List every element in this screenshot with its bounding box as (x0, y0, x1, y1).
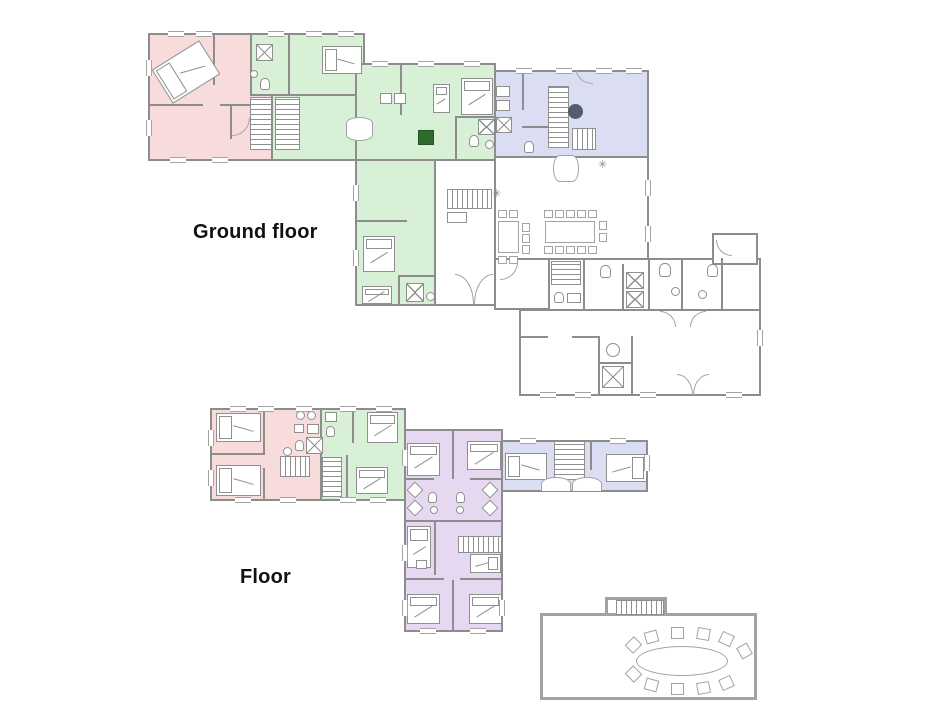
stove-icon (418, 130, 434, 145)
wall (622, 264, 624, 311)
wall (470, 478, 503, 480)
shower-icon (306, 437, 323, 454)
window-marker (170, 157, 186, 163)
window-marker (353, 185, 359, 201)
bed-icon (461, 78, 493, 115)
toilet-icon (469, 135, 479, 147)
double-door-icon (346, 129, 373, 141)
window-marker (306, 31, 322, 37)
kitchen-unit-icon (380, 93, 392, 104)
chair-icon (577, 246, 586, 254)
window-marker (556, 68, 572, 74)
chair-icon (588, 246, 597, 254)
window-marker (296, 406, 312, 412)
stairs-icon (250, 97, 272, 150)
stairs-icon (275, 97, 300, 150)
fixture-icon (307, 424, 319, 434)
toilet-icon (659, 263, 671, 277)
window-marker (645, 226, 651, 242)
window-marker (402, 545, 408, 561)
window-marker (338, 31, 354, 37)
toilet-icon (600, 265, 611, 278)
wall (148, 104, 203, 106)
window-marker (212, 157, 228, 163)
toilet-icon (326, 426, 335, 437)
first-floor-label: Floor (240, 566, 291, 589)
wall (434, 520, 436, 575)
wall (648, 258, 650, 311)
chair-icon (498, 210, 507, 218)
wall (583, 258, 585, 311)
window-marker (168, 31, 184, 37)
sink-icon (307, 411, 316, 420)
wall (522, 126, 548, 128)
fixture-icon (416, 560, 427, 569)
wall (631, 336, 633, 396)
column-marker-icon (568, 104, 583, 119)
toilet-icon (554, 292, 564, 303)
wall (721, 258, 723, 311)
toilet-icon (707, 264, 718, 277)
wall (355, 220, 407, 222)
window-marker (402, 450, 408, 466)
wall (398, 275, 436, 277)
bed-icon (467, 441, 501, 470)
window-marker (645, 180, 651, 196)
chair-icon (544, 210, 553, 218)
window-marker (516, 68, 532, 74)
window-marker (208, 430, 214, 446)
oval-table (636, 646, 728, 676)
chair-icon (696, 627, 711, 641)
window-marker (280, 497, 296, 503)
wall (460, 578, 503, 580)
toilet-icon (524, 141, 534, 153)
chair-icon (522, 234, 530, 243)
stairs-icon (572, 128, 596, 150)
window-marker (146, 120, 152, 136)
sink-icon (606, 343, 620, 357)
wall (452, 429, 454, 479)
bed-icon (216, 413, 261, 442)
window-marker (146, 60, 152, 76)
wall (263, 408, 265, 453)
window-marker (235, 497, 251, 503)
wall (404, 578, 444, 580)
wall (572, 336, 600, 338)
stairs-icon (548, 86, 569, 148)
window-marker (520, 438, 536, 444)
window-marker (596, 68, 612, 74)
sink-icon (296, 411, 305, 420)
wall (681, 258, 683, 311)
stairs-icon (458, 536, 502, 553)
chair-icon (555, 210, 564, 218)
chair-icon (522, 245, 530, 254)
window-marker (575, 392, 591, 398)
wall (404, 478, 434, 480)
window-marker (726, 392, 742, 398)
sink-icon (426, 292, 435, 301)
stairs-icon (616, 600, 664, 615)
window-marker (372, 61, 388, 67)
chair-icon (566, 210, 575, 218)
stairs-icon (280, 456, 310, 477)
bed-icon (322, 46, 362, 74)
bed-icon (407, 443, 440, 476)
fixture-icon (496, 100, 510, 111)
window-marker (626, 68, 642, 74)
wall (288, 33, 290, 96)
chair-icon (671, 683, 684, 695)
window-marker (258, 406, 274, 412)
window-marker (370, 497, 386, 503)
wall (400, 63, 402, 115)
stairs-icon (322, 457, 342, 497)
fixture-icon (325, 412, 337, 422)
wall (346, 455, 348, 501)
kitchen-unit-icon (394, 93, 406, 104)
double-door-icon (572, 477, 602, 491)
toilet-icon (456, 492, 465, 503)
sink-icon (485, 140, 494, 149)
wall (404, 520, 503, 522)
toilet-icon (428, 492, 437, 503)
bed-icon (356, 467, 388, 494)
bed-icon (362, 286, 392, 304)
fixture-icon (447, 212, 467, 223)
bed-icon (606, 454, 647, 482)
bed-icon (505, 453, 547, 480)
double-door-icon (346, 117, 373, 129)
window-marker (540, 392, 556, 398)
chair-icon (544, 246, 553, 254)
bed-icon (216, 465, 261, 496)
sink-icon (250, 70, 258, 78)
wall (263, 468, 265, 501)
shower-icon (478, 119, 495, 135)
double-door-icon (553, 155, 566, 182)
bed-icon (367, 412, 398, 443)
dining-table (545, 221, 595, 243)
shower-icon (496, 117, 512, 133)
toilet-icon (260, 78, 270, 90)
vent-icon: ✳ (492, 189, 501, 200)
toilet-icon (295, 440, 304, 451)
window-marker (464, 61, 480, 67)
sink-icon (698, 290, 707, 299)
wall (210, 453, 265, 455)
window-marker (268, 31, 284, 37)
shower-icon (626, 272, 644, 289)
wall (455, 116, 457, 161)
chair-icon (566, 246, 575, 254)
sink-icon (456, 506, 464, 514)
wall (398, 275, 400, 306)
chair-icon (588, 210, 597, 218)
window-marker (376, 406, 392, 412)
shower-icon (626, 291, 644, 308)
wall (590, 440, 592, 470)
ground-floor-plan: ✳ ✳ (0, 0, 950, 400)
chair-icon (555, 246, 564, 254)
outbuilding-plan (0, 590, 950, 713)
fixture-icon (496, 86, 510, 97)
chair-icon (577, 210, 586, 218)
wall (522, 70, 524, 110)
wall (521, 336, 548, 338)
stairs-icon (554, 441, 585, 480)
chair-icon (599, 221, 607, 230)
window-marker (757, 330, 763, 346)
wall (598, 362, 633, 364)
chair-icon (696, 681, 711, 695)
window-marker (610, 438, 626, 444)
bed-icon (470, 554, 501, 573)
fixture-icon (294, 424, 304, 433)
window-marker (340, 497, 356, 503)
ground-floor-label: Ground floor (193, 221, 318, 244)
wall (598, 336, 600, 396)
sink-icon (430, 506, 438, 514)
double-door-icon (566, 155, 579, 182)
window-marker (644, 455, 650, 471)
double-door-icon (541, 477, 571, 491)
window-marker (208, 470, 214, 486)
dining-table (498, 221, 519, 253)
window-marker (418, 61, 434, 67)
sink-icon (283, 447, 292, 456)
window-marker (353, 250, 359, 266)
stairs-icon (551, 261, 581, 285)
sink-icon (671, 287, 680, 296)
chair-icon (671, 627, 684, 639)
sink-unit-icon (567, 293, 581, 303)
shower-icon (256, 44, 273, 61)
wall (455, 116, 496, 118)
vent-icon: ✳ (598, 160, 607, 171)
function-room (519, 309, 761, 396)
chair-icon (509, 210, 518, 218)
bed-icon (363, 236, 395, 272)
window-marker (230, 406, 246, 412)
shower-icon (406, 283, 424, 302)
stairs-icon (447, 189, 492, 209)
window-marker (196, 31, 212, 37)
window-marker (640, 392, 656, 398)
floorplan-canvas: ✳ ✳ (0, 0, 950, 713)
chair-icon (522, 223, 530, 232)
bed-icon (433, 84, 450, 113)
chair-icon (599, 233, 607, 242)
window-marker (340, 406, 356, 412)
wall (352, 408, 354, 443)
shower-icon (602, 366, 624, 388)
